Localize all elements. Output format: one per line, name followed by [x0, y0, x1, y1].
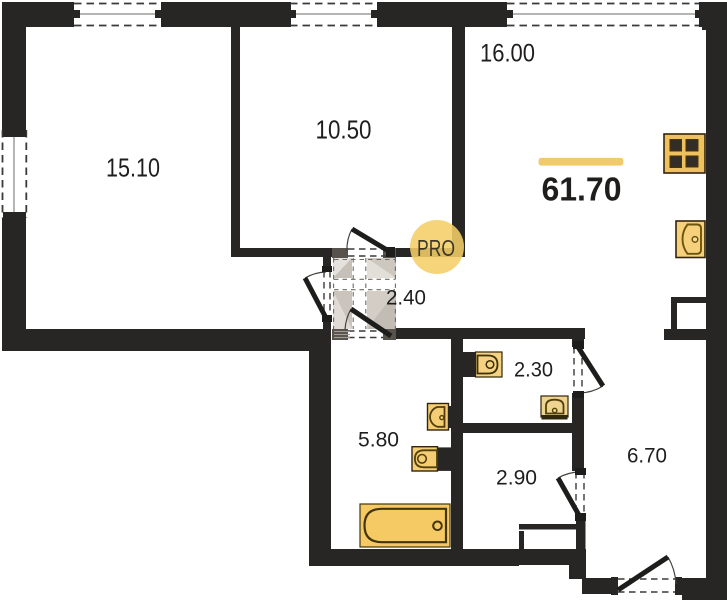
svg-text:PRO: PRO — [417, 235, 455, 261]
svg-text:10.50: 10.50 — [316, 115, 372, 145]
svg-text:61.70: 61.70 — [542, 171, 622, 208]
svg-text:16.00: 16.00 — [480, 40, 535, 68]
svg-text:2.30: 2.30 — [514, 359, 553, 382]
svg-text:6.70: 6.70 — [627, 444, 667, 468]
svg-text:5.80: 5.80 — [358, 428, 399, 452]
svg-text:2.40: 2.40 — [386, 286, 426, 310]
svg-text:15.10: 15.10 — [106, 153, 160, 183]
svg-text:2.90: 2.90 — [496, 467, 537, 490]
